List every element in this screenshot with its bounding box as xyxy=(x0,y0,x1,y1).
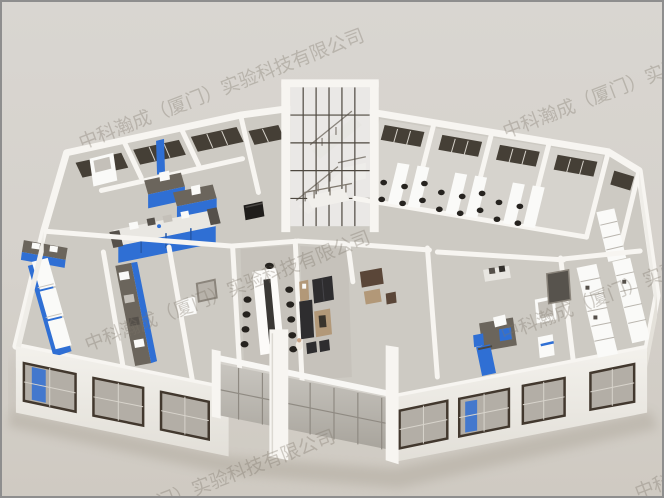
blue-cabinet xyxy=(156,139,165,175)
white-machine xyxy=(181,297,197,317)
wall-screen xyxy=(547,270,571,304)
entrance-pillar xyxy=(386,345,399,464)
floorplan-render: 中科瀚成（厦门）实验科技有限公司中科瀚成（厦门）实验科技有限公司中科瀚成（厦门）… xyxy=(0,0,664,498)
interior-window xyxy=(197,280,217,302)
entrance-pillar xyxy=(212,349,221,418)
fume-cabinet xyxy=(89,153,117,187)
building-render xyxy=(2,2,662,496)
display-cabinet xyxy=(299,280,309,302)
stair-tower xyxy=(281,79,378,232)
